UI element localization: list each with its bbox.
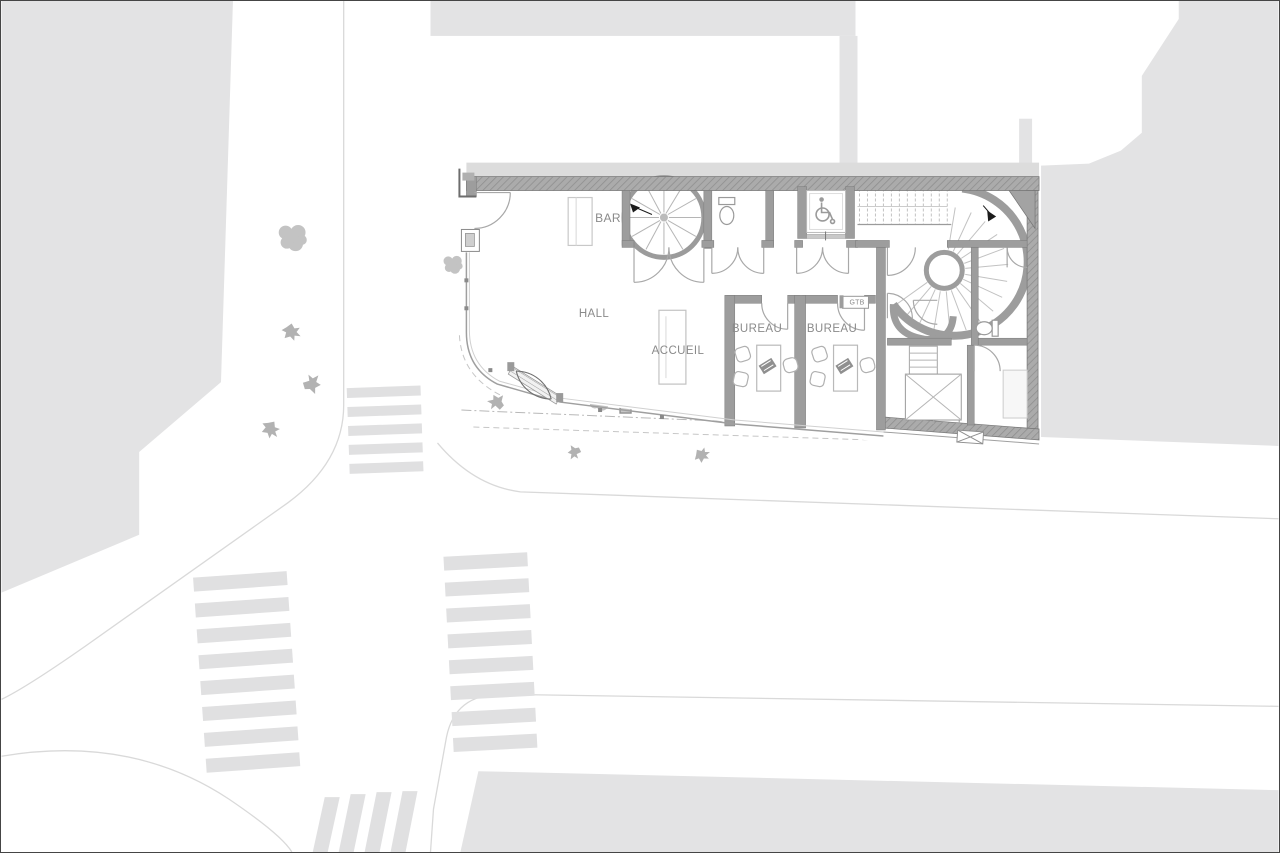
site-plan-drawing — [1, 1, 1279, 852]
crosswalk-stripes-center — [443, 552, 537, 752]
building-mass-top-left — [2, 1, 233, 593]
site-plan-canvas: BAR HALL ACCUEIL BUREAU BUREAU GTB — [0, 0, 1280, 853]
party-wall-band — [466, 163, 1039, 177]
crosswalk-stripes-west — [193, 571, 300, 773]
building-mass-bottom-right — [460, 771, 1278, 852]
floor-plan — [459, 163, 1039, 444]
storage-rect — [1003, 370, 1027, 418]
building-mass-top-center — [430, 1, 1032, 175]
building-mass-top-right — [1041, 1, 1278, 446]
elevator-icon — [807, 191, 846, 241]
reception-desk-icon — [659, 310, 686, 384]
crosswalk-stripes-north — [347, 386, 424, 474]
crosswalk-stripes-south — [313, 791, 418, 852]
toilet-icon — [976, 320, 998, 336]
gtb-box — [840, 295, 869, 308]
cellar-hatch-icon — [957, 430, 984, 444]
side-door-frame — [461, 229, 479, 251]
toilet-icon — [719, 198, 735, 225]
shaft-x-icon — [905, 374, 961, 420]
